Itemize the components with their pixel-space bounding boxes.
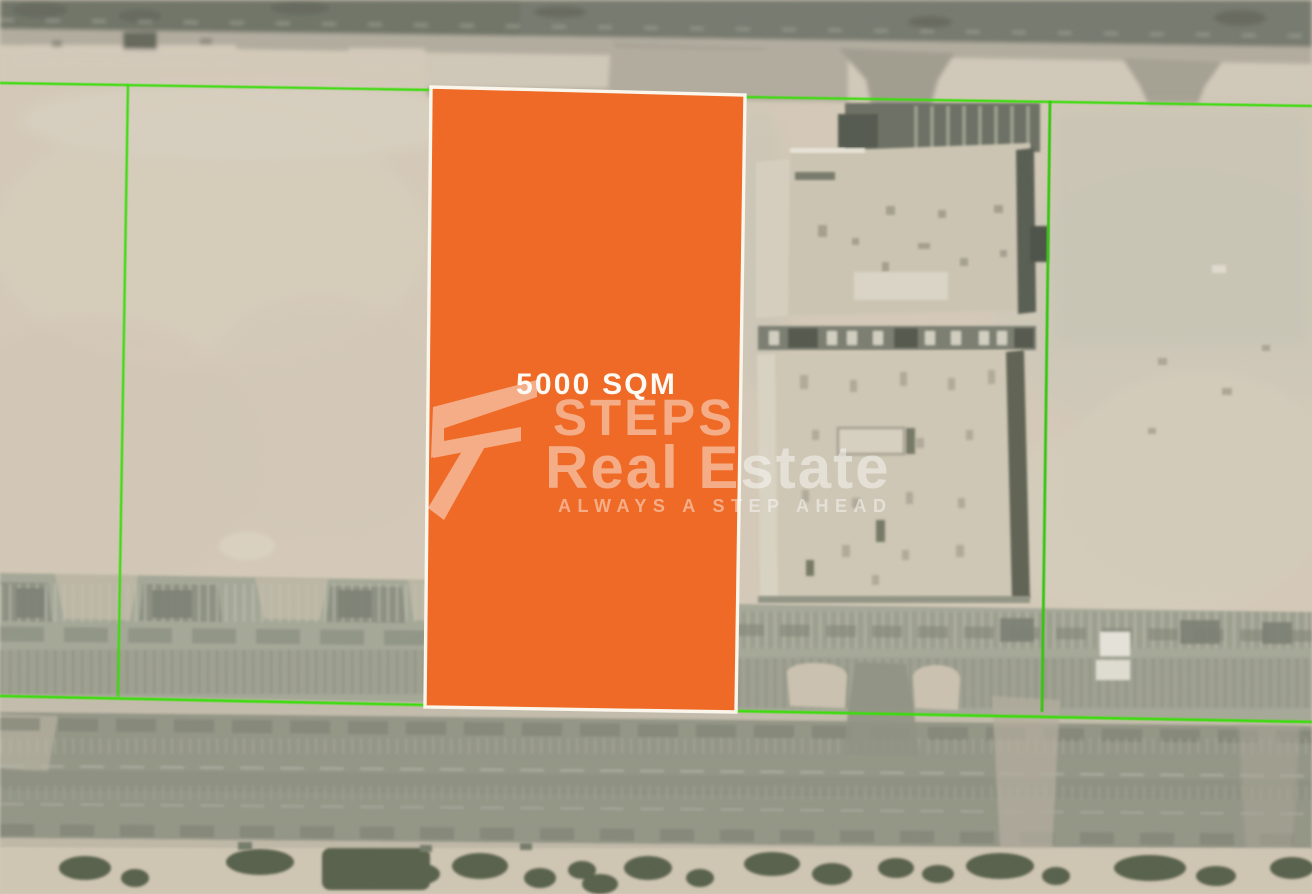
svg-text:Real Estate: Real Estate [545, 434, 891, 501]
svg-text:ALWAYS A STEP AHEAD: ALWAYS A STEP AHEAD [558, 496, 893, 516]
svg-text:5000 SQM: 5000 SQM [516, 368, 677, 401]
